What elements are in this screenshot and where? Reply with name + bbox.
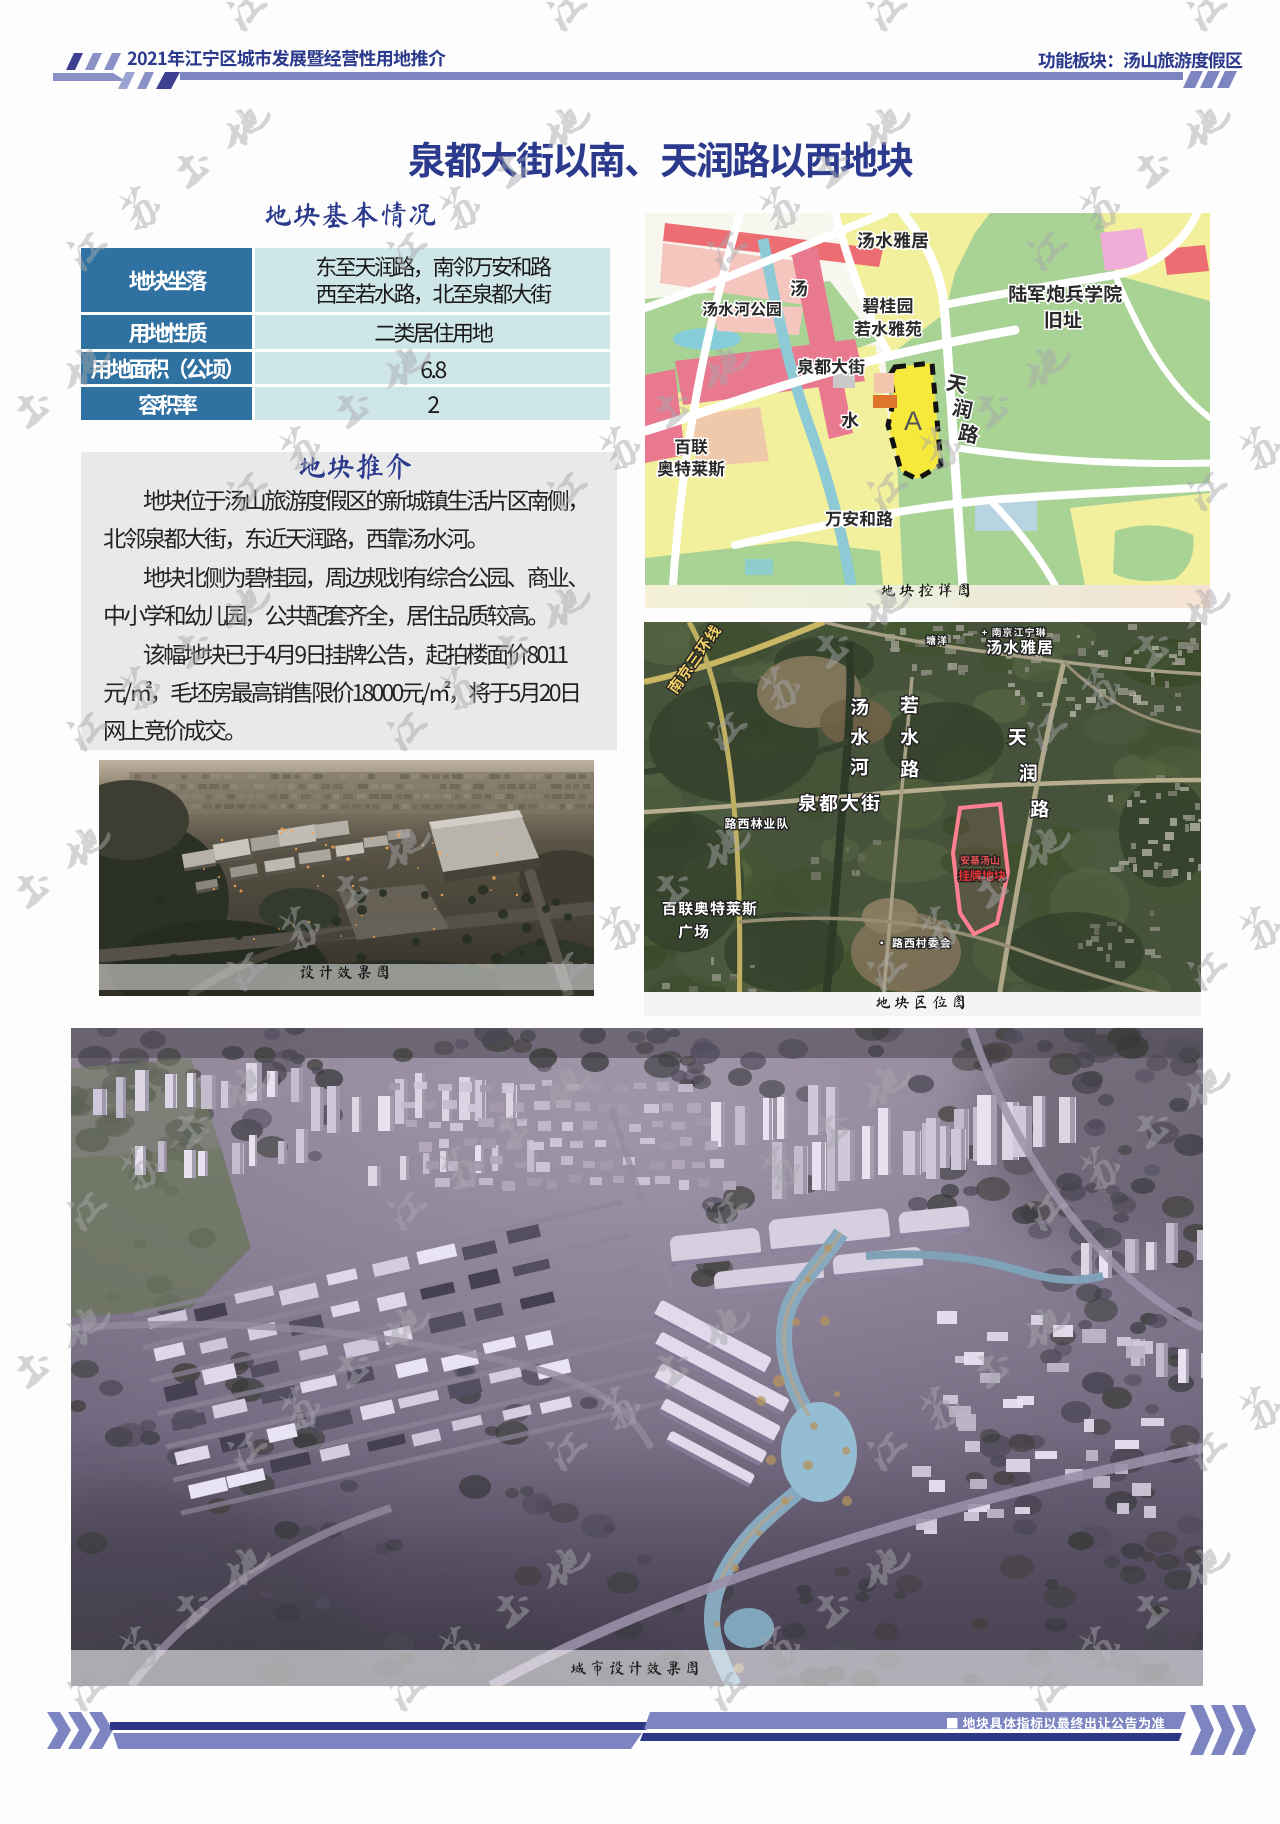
svg-text:若水雅苑: 若水雅苑 xyxy=(854,315,922,340)
svg-text:奥特莱斯: 奥特莱斯 xyxy=(657,455,725,480)
svg-text:+ 南京江宁琳: + 南京江宁琳 xyxy=(981,624,1046,639)
svg-text:润: 润 xyxy=(1019,759,1039,786)
svg-text:百联奥特莱斯: 百联奥特莱斯 xyxy=(662,898,758,919)
svg-text:· 路西村委会: · 路西村委会 xyxy=(876,935,952,951)
svg-text:汤水雅居: 汤水雅居 xyxy=(857,227,929,253)
svg-text:天: 天 xyxy=(1008,723,1028,750)
svg-text:汤水河公园: 汤水河公园 xyxy=(702,296,782,320)
svg-text:水: 水 xyxy=(841,407,859,433)
svg-text:汤: 汤 xyxy=(850,693,870,720)
svg-text:若: 若 xyxy=(900,691,920,718)
svg-text:旧址: 旧址 xyxy=(1044,306,1082,333)
svg-text:陆军炮兵学院: 陆军炮兵学院 xyxy=(1008,280,1122,307)
svg-text:路西林业队: 路西林业队 xyxy=(724,815,789,832)
svg-text:水: 水 xyxy=(850,723,870,750)
svg-text:广场: 广场 xyxy=(678,921,710,942)
svg-text:碧桂园: 碧桂园 xyxy=(863,292,914,317)
svg-text:万安和路: 万安和路 xyxy=(825,505,894,530)
svg-text:安基汤山: 安基汤山 xyxy=(960,852,1000,867)
svg-text:挂牌地块: 挂牌地块 xyxy=(958,867,1006,884)
svg-text:塘洋: 塘洋 xyxy=(925,632,948,647)
svg-text:路: 路 xyxy=(900,755,920,782)
svg-text:河: 河 xyxy=(850,753,870,780)
svg-text:泉都大街: 泉都大街 xyxy=(798,789,882,816)
svg-text:路: 路 xyxy=(1030,795,1050,822)
svg-text:泉都大街: 泉都大街 xyxy=(797,353,865,378)
svg-text:A: A xyxy=(904,406,922,436)
svg-text:水: 水 xyxy=(900,723,920,750)
svg-text:汤: 汤 xyxy=(790,275,808,301)
